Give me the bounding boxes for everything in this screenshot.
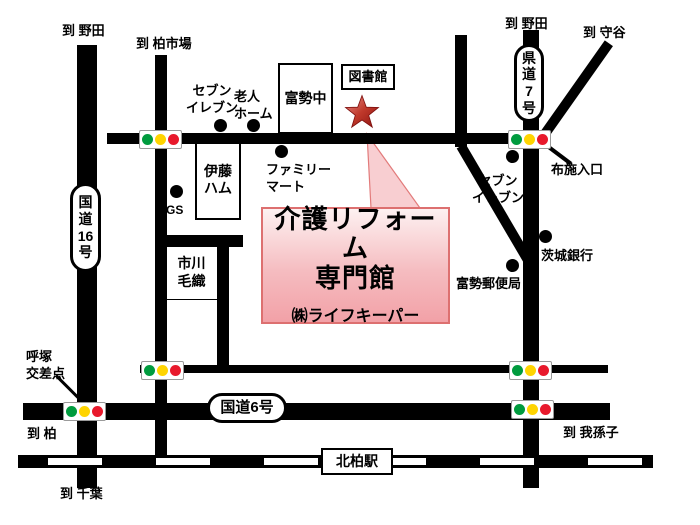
traffic-light-icon-thin-west xyxy=(141,361,184,380)
dot-icon-fusei-post-office xyxy=(506,259,519,272)
building-ito-ham: 伊藤 ハム xyxy=(195,140,241,220)
green-light xyxy=(144,365,155,376)
dest-kashiwa: 到 柏 xyxy=(27,426,57,443)
dot-icon-seven-eleven-right xyxy=(506,150,519,163)
poi-family-mart: ファミリー マート xyxy=(266,162,331,196)
yellow-light xyxy=(525,365,536,376)
dot-icon-family-mart xyxy=(275,145,288,158)
green-light xyxy=(514,404,525,415)
access-map: 到 野田 到 柏市場 到 野田 到 守谷 到 柏 到 千葉 到 我孫子 国 道 … xyxy=(0,0,700,525)
callout-title-line1: 介護リフォーム xyxy=(263,205,448,263)
traffic-light-icon-route6-east xyxy=(511,400,554,419)
dest-noda-left: 到 野田 xyxy=(62,23,105,40)
road-north-stub xyxy=(455,35,467,147)
yellow-light xyxy=(155,134,166,145)
badge-kendo7: 県 道 7 号 xyxy=(514,44,544,122)
badge-route16: 国 道 16 号 xyxy=(70,183,101,272)
yellow-light xyxy=(79,406,90,417)
traffic-light-icon-yobitsuka xyxy=(63,402,106,421)
dot-icon-seven-eleven-left xyxy=(214,119,227,132)
red-light xyxy=(92,406,103,417)
road-kashiwa-ichiba xyxy=(155,55,167,455)
callout-box: 介護リフォーム 専門館 ㈱ライフキーパー xyxy=(261,207,450,324)
poi-elderly-home: 老人 ホーム xyxy=(234,89,273,123)
road-itoham-branch xyxy=(217,240,229,370)
building-library: 図書館 xyxy=(341,64,395,90)
red-light xyxy=(540,404,551,415)
red-light xyxy=(170,365,181,376)
poi-fusei-post-office: 富勢郵便局 xyxy=(456,276,521,293)
green-light xyxy=(66,406,77,417)
traffic-light-icon-main-west xyxy=(139,130,182,149)
callout-company: ㈱ライフキーパー xyxy=(292,302,420,326)
green-light xyxy=(511,134,522,145)
star-icon-location-marker xyxy=(344,93,380,133)
poi-ibaraki-bank: 茨城銀行 xyxy=(541,248,593,265)
callout-title-line2: 専門館 xyxy=(315,264,396,293)
building-fusei-junior-high: 富勢中 xyxy=(278,63,333,134)
dest-kashiwa-ichiba: 到 柏市場 xyxy=(136,36,192,53)
yellow-light xyxy=(527,404,538,415)
red-light xyxy=(168,134,179,145)
dot-icon-ibaraki-bank xyxy=(539,230,552,243)
poi-gas-station: GS xyxy=(166,203,183,219)
green-light xyxy=(512,365,523,376)
yellow-light xyxy=(157,365,168,376)
dest-abiko: 到 我孫子 xyxy=(563,425,619,442)
green-light xyxy=(142,134,153,145)
red-light xyxy=(538,365,549,376)
building-ichikawa-keori: 市川 毛織 xyxy=(161,245,222,300)
badge-route6: 国道6号 xyxy=(207,393,287,423)
poi-seven-eleven-left: セブン イレブン xyxy=(186,83,238,117)
yellow-light xyxy=(524,134,535,145)
road-moriya-diagonal xyxy=(538,40,613,141)
poi-fuse-entrance: 布施入口 xyxy=(551,162,603,179)
traffic-light-icon-main-east xyxy=(508,130,551,149)
red-light xyxy=(537,134,548,145)
dot-icon-gas-station xyxy=(170,185,183,198)
dest-chiba: 到 千葉 xyxy=(60,486,103,503)
road-itoham-horizontal xyxy=(155,235,243,247)
traffic-light-icon-thin-east xyxy=(509,361,552,380)
building-kitakashiwa-station: 北柏駅 xyxy=(321,448,393,475)
dot-icon-elderly-home xyxy=(247,119,260,132)
